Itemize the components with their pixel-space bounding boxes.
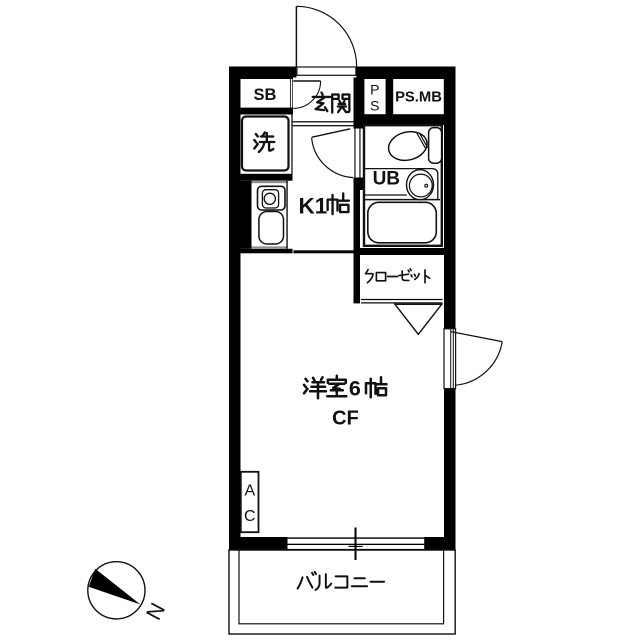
- svg-text:SB: SB: [254, 86, 277, 104]
- svg-text:6: 6: [349, 377, 361, 401]
- svg-text:PS.MB: PS.MB: [395, 90, 442, 106]
- svg-text:C: C: [244, 508, 256, 525]
- svg-text:CF: CF: [332, 407, 359, 429]
- svg-text:P: P: [370, 82, 379, 98]
- svg-text:UB: UB: [373, 168, 400, 189]
- svg-text:S: S: [370, 98, 379, 114]
- svg-text:A: A: [244, 483, 255, 500]
- svg-text:K1: K1: [299, 194, 328, 219]
